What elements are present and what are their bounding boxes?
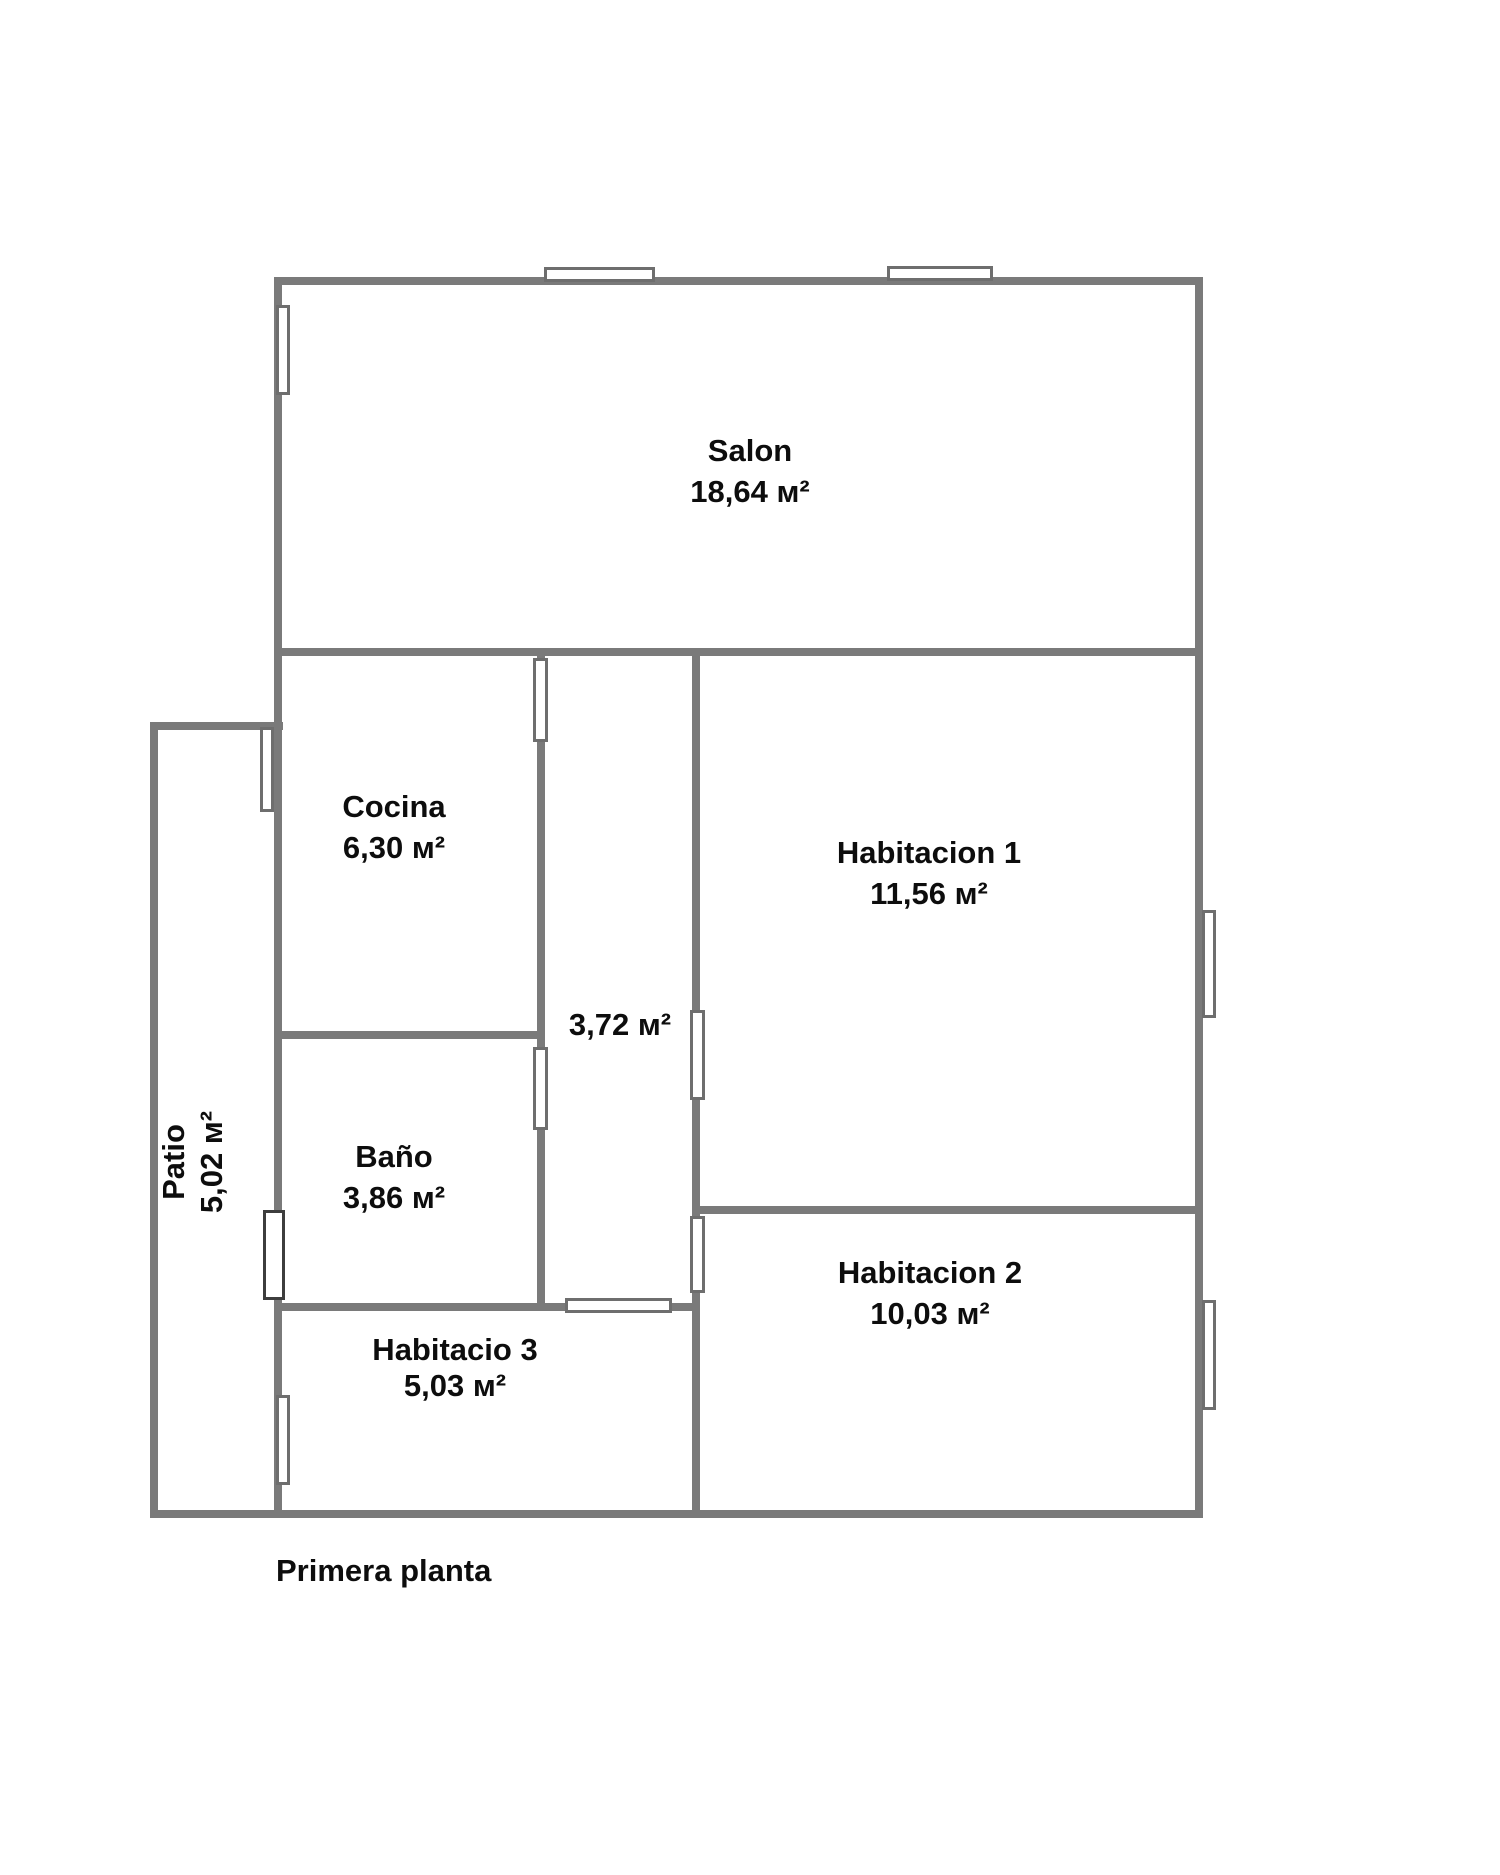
floor-plan: Salon 18,64 м² Cocina 6,30 м² Habitacion… xyxy=(0,0,1500,1875)
plan-title: Primera planta xyxy=(276,1553,491,1589)
room-label-habitacion1: Habitacion 1 11,56 м² xyxy=(837,832,1021,914)
room-label-pasillo: 3,72 м² xyxy=(569,1004,671,1045)
room-name: Patio xyxy=(155,1111,193,1213)
room-area: 6,30 м² xyxy=(342,827,445,868)
window-salon-left xyxy=(276,305,290,395)
room-name: Habitacion 2 xyxy=(838,1252,1022,1293)
wall-corridor-left xyxy=(537,648,545,1311)
wall-left xyxy=(274,277,282,1518)
window-top-1 xyxy=(544,267,655,282)
room-name: Baño xyxy=(343,1136,445,1177)
door-patio xyxy=(263,1210,285,1300)
room-name: Salon xyxy=(690,430,809,471)
room-label-cocina: Cocina 6,30 м² xyxy=(342,786,445,868)
door-hab2 xyxy=(690,1216,705,1293)
wall-bottom xyxy=(150,1510,1203,1518)
room-area: 3,86 м² xyxy=(343,1177,445,1218)
window-hab3-left xyxy=(276,1395,290,1485)
room-area: 10,03 м² xyxy=(838,1293,1022,1334)
door-hab3 xyxy=(565,1298,672,1313)
wall-hab1-hab2-divider xyxy=(692,1206,1203,1214)
window-hab1-right xyxy=(1202,910,1216,1018)
window-top-2 xyxy=(887,266,993,281)
window-hab2-right xyxy=(1202,1300,1216,1410)
room-label-habitacion2: Habitacion 2 10,03 м² xyxy=(838,1252,1022,1334)
room-label-patio: Patio 5,02 м² xyxy=(155,1111,231,1213)
door-cocina xyxy=(533,658,548,742)
room-label-bano: Baño 3,86 м² xyxy=(343,1136,445,1218)
room-area: 5,02 м² xyxy=(193,1111,231,1213)
room-area: 11,56 м² xyxy=(837,873,1021,914)
room-name: Habitacio 3 xyxy=(372,1332,537,1368)
room-area: 18,64 м² xyxy=(690,471,809,512)
room-label-salon: Salon 18,64 м² xyxy=(690,430,809,512)
room-area: 3,72 м² xyxy=(569,1004,671,1045)
room-name: Cocina xyxy=(342,786,445,827)
room-area: 5,03 м² xyxy=(372,1368,537,1404)
room-label-habitacio3: Habitacio 3 5,03 м² xyxy=(372,1332,537,1404)
room-name: Habitacion 1 xyxy=(837,832,1021,873)
window-patio xyxy=(260,727,274,812)
wall-cocina-bano-divider xyxy=(274,1031,545,1039)
wall-salon-bottom xyxy=(274,648,1203,656)
door-bano xyxy=(533,1047,548,1130)
wall-top xyxy=(274,277,1203,285)
door-hab1 xyxy=(690,1010,705,1100)
